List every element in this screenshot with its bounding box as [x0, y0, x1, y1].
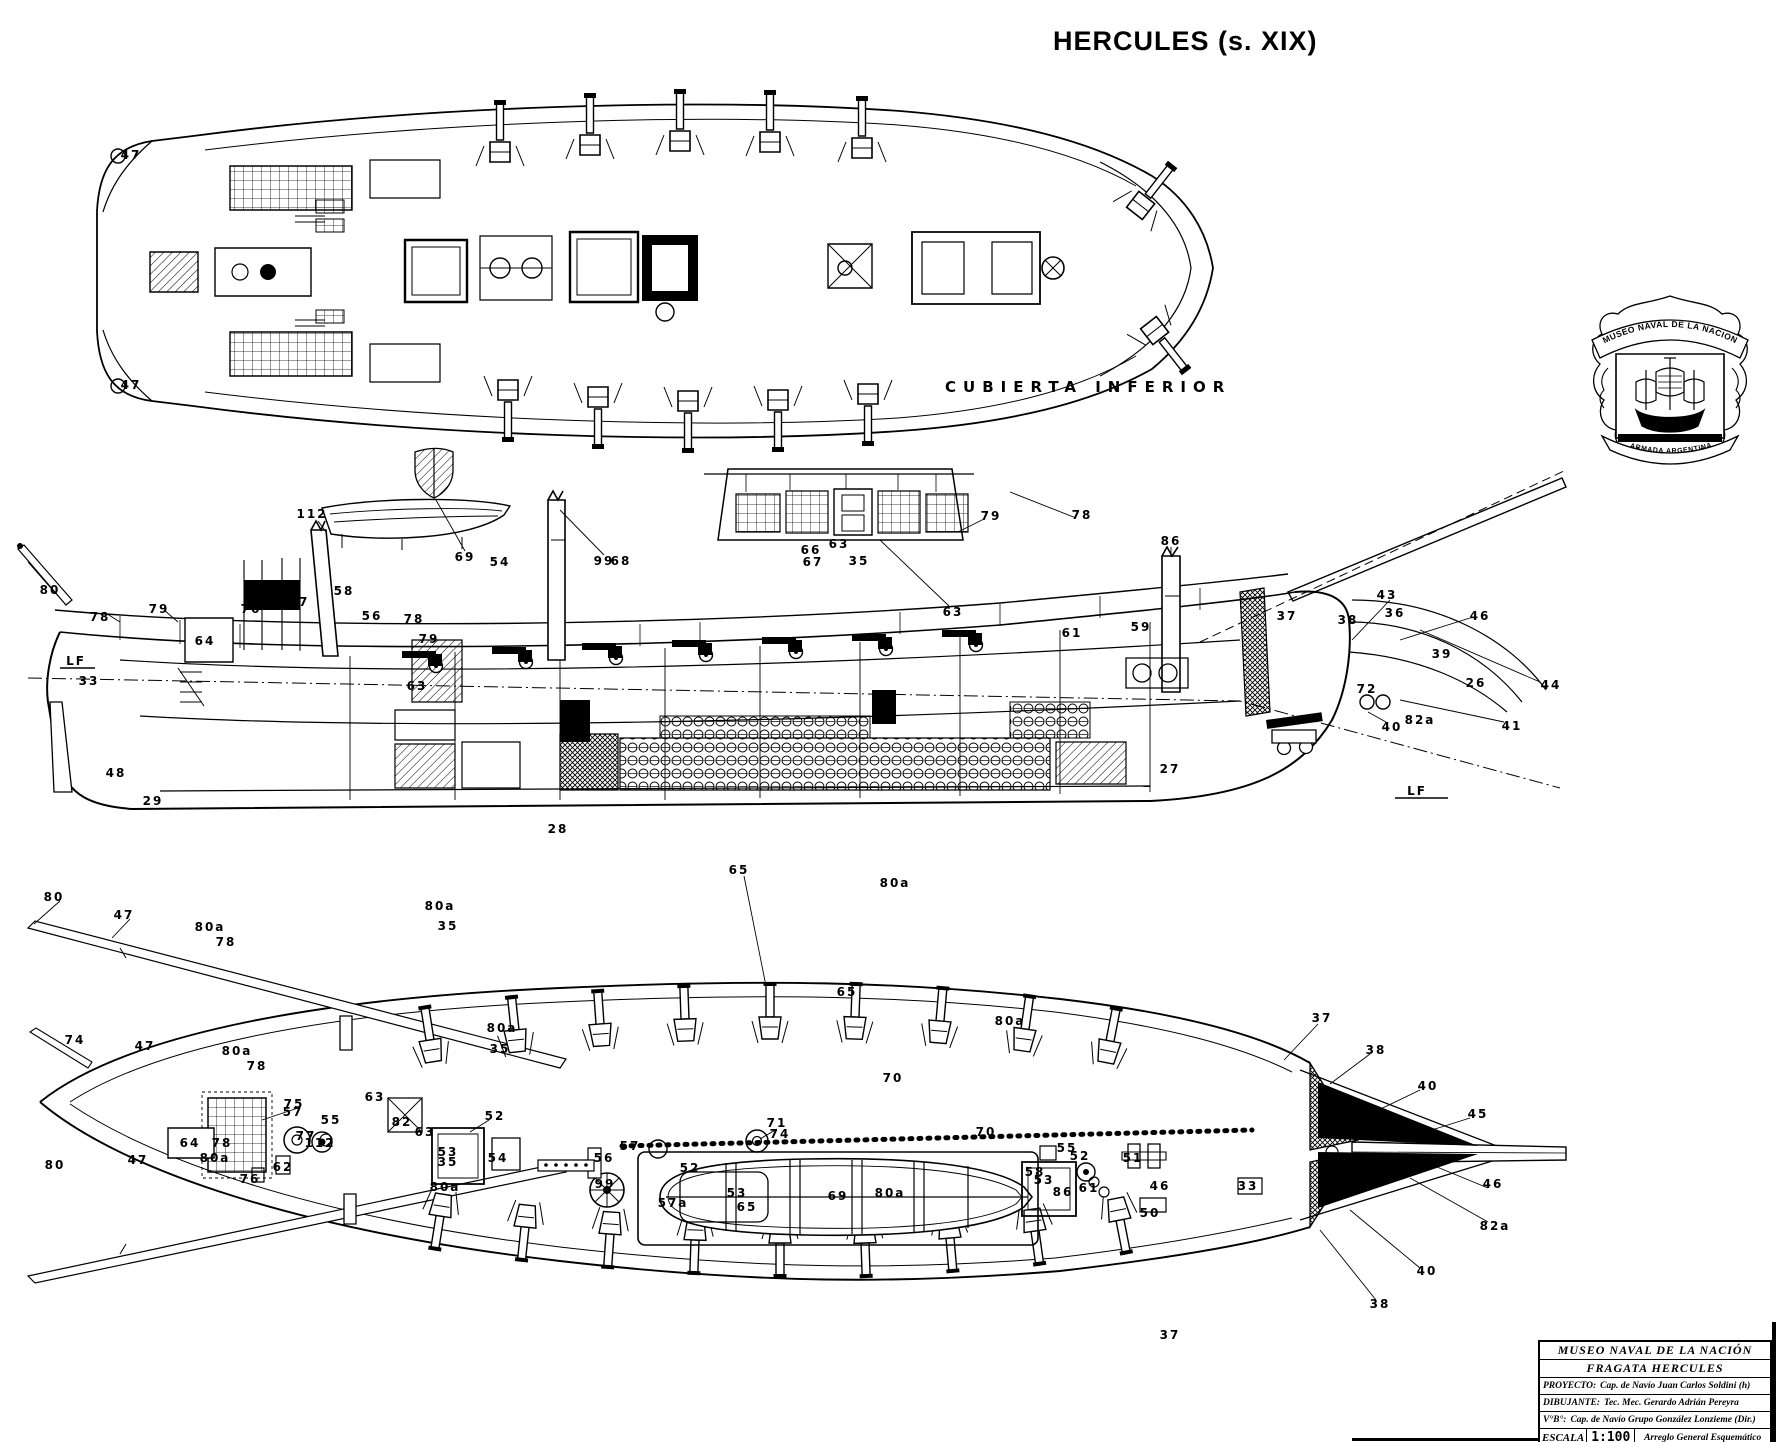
- callout-upper-deck-plan-69: 69: [828, 1189, 849, 1203]
- callout-upper-deck-plan-54: 54: [488, 1151, 509, 1165]
- callout-upper-deck-plan-80a: 80a: [222, 1044, 253, 1058]
- callout-upper-deck-plan-76: 76: [240, 1172, 261, 1186]
- callout-longitudinal-section-86: 86: [1161, 534, 1182, 548]
- callout-longitudinal-section-76: 76: [241, 602, 262, 616]
- callout-longitudinal-section-43: 43: [1377, 588, 1398, 602]
- callout-upper-deck-plan-56: 56: [594, 1151, 615, 1165]
- callout-longitudinal-section-48: 48: [106, 766, 127, 780]
- callout-longitudinal-section-27: 27: [1160, 762, 1181, 776]
- callout-longitudinal-section-46: 46: [1470, 609, 1491, 623]
- callout-longitudinal-section-112: 112: [296, 507, 327, 521]
- callout-longitudinal-section-56: 56: [362, 609, 383, 623]
- callout-upper-deck-plan-80a: 80a: [995, 1014, 1026, 1028]
- callout-upper-deck-plan-47: 47: [135, 1039, 156, 1053]
- callout-longitudinal-section-63: 63: [829, 537, 850, 551]
- callout-upper-deck-plan-47: 47: [128, 1153, 149, 1167]
- title-block-museum: MUSEO NAVAL DE LA NACIÓN: [1540, 1342, 1770, 1360]
- callout-upper-deck-plan-80a: 80a: [430, 1180, 461, 1194]
- callout-upper-deck-plan-53: 53: [727, 1186, 748, 1200]
- callout-upper-deck-plan-80a: 80a: [195, 920, 226, 934]
- callout-upper-deck-plan-57: 57: [283, 1105, 304, 1119]
- callout-upper-deck-plan-37: 37: [1160, 1328, 1181, 1342]
- callout-longitudinal-section-26: 26: [1466, 676, 1487, 690]
- callout-longitudinal-section-79: 79: [419, 632, 440, 646]
- escala-value: 1:100: [1586, 1429, 1635, 1442]
- callout-longitudinal-section-80: 80: [40, 583, 61, 597]
- callout-upper-deck-plan-78: 78: [216, 935, 237, 949]
- proyecto-value: Cap. de Navío Juan Carlos Soldini (h): [1600, 1381, 1750, 1391]
- upper-deck-plan-drawing: [15, 855, 1575, 1345]
- callout-longitudinal-section-44: 44: [1541, 678, 1562, 692]
- callout-upper-deck-plan-46: 46: [1483, 1177, 1504, 1191]
- callout-longitudinal-section-39: 39: [1432, 647, 1453, 661]
- callout-upper-deck-plan-70: 70: [883, 1071, 904, 1085]
- callout-longitudinal-section-33: 33: [79, 674, 100, 688]
- callout-longitudinal-section-78: 78: [404, 612, 425, 626]
- callout-longitudinal-section-79: 79: [149, 602, 170, 616]
- callout-upper-deck-plan-40: 40: [1418, 1079, 1439, 1093]
- callout-longitudinal-section-28: 28: [548, 822, 569, 836]
- blueprint-sheet: HERCULES (s. XIX): [0, 0, 1779, 1442]
- callout-longitudinal-section-61: 61: [1062, 626, 1083, 640]
- drawing-title: Arreglo General Esquemático: [1635, 1432, 1770, 1442]
- title-block-ship-name: FRAGATA HERCULES: [1540, 1360, 1770, 1378]
- callout-longitudinal-section-63: 63: [407, 679, 428, 693]
- callout-upper-deck-plan-74: 74: [65, 1033, 86, 1047]
- callout-upper-deck-plan-78: 78: [247, 1059, 268, 1073]
- callout-upper-deck-plan-45: 45: [1468, 1107, 1489, 1121]
- callout-longitudinal-section-41: 41: [1502, 719, 1523, 733]
- title-block-vb: V°B°: Cap. de Navío Grupo González Lonzi…: [1540, 1412, 1770, 1429]
- callout-upper-deck-plan-74: 74: [770, 1127, 791, 1141]
- callout-upper-deck-plan-51: 51: [1123, 1151, 1144, 1165]
- museum-crest: MUSEO NAVAL DE LA NACION ARMADA ARGENTIN…: [1578, 288, 1763, 473]
- vb-value: Cap. de Navío Grupo González Lonzieme (D…: [1570, 1415, 1755, 1425]
- callout-upper-deck-plan-38: 38: [1370, 1297, 1391, 1311]
- callout-upper-deck-plan-70: 70: [976, 1125, 997, 1139]
- callout-upper-deck-plan-38: 38: [1366, 1043, 1387, 1057]
- title-block-proyecto: PROYECTO: Cap. de Navío Juan Carlos Sold…: [1540, 1378, 1770, 1395]
- callout-longitudinal-section-LF: LF: [66, 654, 86, 668]
- callout-longitudinal-section-78: 78: [1072, 508, 1093, 522]
- callout-upper-deck-plan-55: 55: [321, 1113, 342, 1127]
- callout-upper-deck-plan-80a: 80a: [880, 876, 911, 890]
- callout-cubierta-inferior-plan-47: 47: [121, 378, 142, 392]
- vb-label: V°B°:: [1543, 1415, 1566, 1425]
- callout-upper-deck-plan-62: 62: [273, 1160, 294, 1174]
- callout-upper-deck-plan-63: 63: [415, 1125, 436, 1139]
- callout-upper-deck-plan-35: 35: [438, 919, 459, 933]
- callout-upper-deck-plan-40: 40: [1417, 1264, 1438, 1278]
- callout-upper-deck-plan-78: 78: [212, 1136, 233, 1150]
- dibujante-value: Tec. Mec. Gerardo Adrián Pereyra: [1604, 1398, 1739, 1408]
- callout-upper-deck-plan-64: 64: [180, 1136, 201, 1150]
- callout-upper-deck-plan-86: 86: [1053, 1185, 1074, 1199]
- callout-longitudinal-section-68: 68: [611, 554, 632, 568]
- callout-upper-deck-plan-57a: 57a: [658, 1196, 689, 1210]
- callout-upper-deck-plan-55: 55: [1057, 1141, 1078, 1155]
- callout-longitudinal-section-40: 40: [1382, 720, 1403, 734]
- callout-longitudinal-section-35: 35: [849, 554, 870, 568]
- escala-label: ESCALA: [1540, 1431, 1586, 1442]
- title-block-escala-row: ESCALA 1:100 Arreglo General Esquemático: [1540, 1429, 1770, 1442]
- callout-upper-deck-plan-57: 57: [620, 1139, 641, 1153]
- callout-upper-deck-plan-82: 82: [392, 1115, 413, 1129]
- proyecto-label: PROYECTO:: [1543, 1381, 1596, 1391]
- callout-upper-deck-plan-46: 46: [1150, 1179, 1171, 1193]
- callout-upper-deck-plan-47: 47: [114, 908, 135, 922]
- lower-deck-plan-drawing: [80, 80, 1225, 460]
- callout-upper-deck-plan-50: 50: [1140, 1206, 1161, 1220]
- dibujante-label: DIBUJANTE:: [1543, 1398, 1600, 1408]
- page-title: HERCULES (s. XIX): [1053, 26, 1318, 57]
- callout-longitudinal-section-82a: 82a: [1405, 713, 1436, 727]
- callout-longitudinal-section-38: 38: [1338, 613, 1359, 627]
- callout-longitudinal-section-72: 72: [1357, 682, 1378, 696]
- callout-longitudinal-section-LF: LF: [1407, 784, 1427, 798]
- callout-upper-deck-plan-80: 80: [45, 1158, 66, 1172]
- callout-upper-deck-plan-80: 80: [44, 890, 65, 904]
- deck-label-cubierta-inferior: CUBIERTA INFERIOR: [945, 378, 1231, 396]
- callout-longitudinal-section-54: 54: [490, 555, 511, 569]
- callout-upper-deck-plan-61: 61: [1079, 1181, 1100, 1195]
- callout-upper-deck-plan-52: 52: [485, 1109, 506, 1123]
- callout-cubierta-inferior-plan-47: 47: [121, 148, 142, 162]
- callout-upper-deck-plan-80a: 80a: [200, 1151, 231, 1165]
- callout-longitudinal-section-69: 69: [455, 550, 476, 564]
- longitudinal-section-drawing: [5, 440, 1575, 850]
- callout-upper-deck-plan-99: 99: [595, 1177, 616, 1191]
- callout-longitudinal-section-59: 59: [1131, 620, 1152, 634]
- sheet-border-rule-vertical: [1772, 1322, 1776, 1442]
- callout-upper-deck-plan-82a: 82a: [1480, 1219, 1511, 1233]
- callout-longitudinal-section-29: 29: [143, 794, 164, 808]
- callout-upper-deck-plan-80a: 80a: [487, 1021, 518, 1035]
- callout-upper-deck-plan-63: 63: [365, 1090, 386, 1104]
- callout-upper-deck-plan-112: 112: [304, 1136, 335, 1150]
- callout-upper-deck-plan-52: 52: [680, 1161, 701, 1175]
- callout-upper-deck-plan-80a: 80a: [875, 1186, 906, 1200]
- callout-longitudinal-section-67: 67: [803, 555, 824, 569]
- callout-upper-deck-plan-35: 35: [490, 1042, 511, 1056]
- callout-upper-deck-plan-65: 65: [729, 863, 750, 877]
- callout-upper-deck-plan-37: 37: [1312, 1011, 1333, 1025]
- callout-upper-deck-plan-58: 58: [1025, 1165, 1046, 1179]
- callout-longitudinal-section-78: 78: [90, 610, 111, 624]
- callout-longitudinal-section-37: 37: [1277, 609, 1298, 623]
- callout-longitudinal-section-58: 58: [334, 584, 355, 598]
- callout-longitudinal-section-63: 63: [943, 605, 964, 619]
- callout-longitudinal-section-77: 77: [289, 595, 310, 609]
- callout-upper-deck-plan-65: 65: [737, 1200, 758, 1214]
- callout-longitudinal-section-36: 36: [1385, 606, 1406, 620]
- callout-longitudinal-section-79: 79: [981, 509, 1002, 523]
- title-block-dibujante: DIBUJANTE: Tec. Mec. Gerardo Adrián Pere…: [1540, 1395, 1770, 1412]
- callout-longitudinal-section-64: 64: [195, 634, 216, 648]
- callout-upper-deck-plan-35: 35: [438, 1155, 459, 1169]
- title-block: MUSEO NAVAL DE LA NACIÓN FRAGATA HERCULE…: [1538, 1340, 1772, 1442]
- callout-upper-deck-plan-80a: 80a: [425, 899, 456, 913]
- callout-upper-deck-plan-33: 33: [1238, 1179, 1259, 1193]
- callout-upper-deck-plan-65: 65: [837, 985, 858, 999]
